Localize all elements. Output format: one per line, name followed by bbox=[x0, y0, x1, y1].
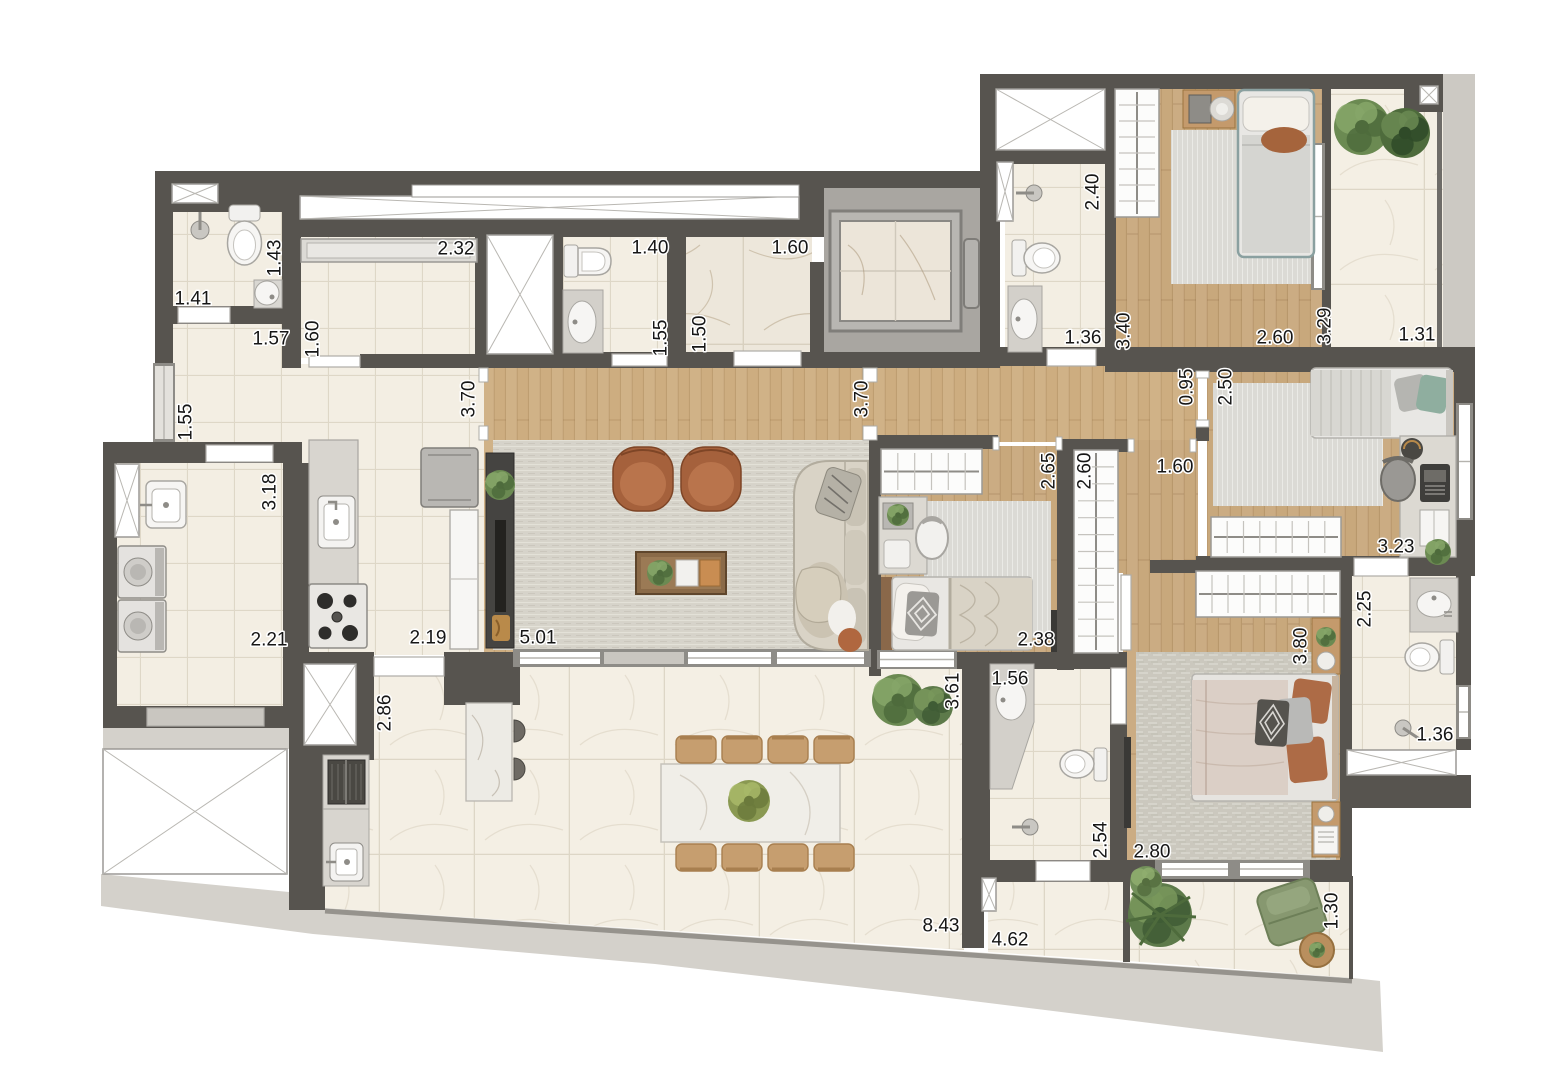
svg-text:5.01: 5.01 bbox=[520, 628, 557, 649]
svg-text:2.54: 2.54 bbox=[1091, 821, 1112, 858]
svg-text:2.80: 2.80 bbox=[1134, 842, 1171, 863]
svg-text:3.70: 3.70 bbox=[852, 381, 873, 418]
svg-text:1.55: 1.55 bbox=[176, 404, 197, 441]
svg-text:2.21: 2.21 bbox=[251, 630, 288, 651]
svg-text:3.29: 3.29 bbox=[1315, 308, 1336, 345]
svg-text:1.43: 1.43 bbox=[265, 240, 286, 277]
svg-text:3.80: 3.80 bbox=[1291, 628, 1312, 665]
svg-text:8.43: 8.43 bbox=[923, 916, 960, 937]
svg-text:4.62: 4.62 bbox=[992, 930, 1029, 951]
svg-text:2.86: 2.86 bbox=[375, 695, 396, 732]
svg-text:2.25: 2.25 bbox=[1355, 591, 1376, 628]
svg-text:1.40: 1.40 bbox=[632, 238, 669, 259]
svg-text:2.40: 2.40 bbox=[1083, 174, 1104, 211]
svg-text:1.30: 1.30 bbox=[1322, 893, 1343, 930]
svg-text:0.95: 0.95 bbox=[1177, 369, 1198, 406]
svg-text:3.40: 3.40 bbox=[1114, 313, 1135, 350]
svg-text:1.36: 1.36 bbox=[1065, 328, 1102, 349]
svg-text:1.41: 1.41 bbox=[175, 289, 212, 310]
svg-text:1.50: 1.50 bbox=[690, 316, 711, 353]
svg-text:1.55: 1.55 bbox=[651, 320, 672, 357]
svg-text:3.70: 3.70 bbox=[459, 381, 480, 418]
svg-text:1.56: 1.56 bbox=[992, 669, 1029, 690]
svg-text:3.18: 3.18 bbox=[260, 474, 281, 511]
svg-text:1.36: 1.36 bbox=[1417, 725, 1454, 746]
svg-text:1.57: 1.57 bbox=[253, 329, 290, 350]
svg-text:1.60: 1.60 bbox=[303, 321, 324, 358]
svg-text:1.60: 1.60 bbox=[772, 238, 809, 259]
svg-text:2.38: 2.38 bbox=[1018, 630, 1055, 651]
svg-text:1.60: 1.60 bbox=[1157, 457, 1194, 478]
svg-text:2.60: 2.60 bbox=[1257, 328, 1294, 349]
svg-text:3.23: 3.23 bbox=[1378, 537, 1415, 558]
svg-text:2.32: 2.32 bbox=[438, 239, 475, 260]
svg-text:2.65: 2.65 bbox=[1039, 453, 1060, 490]
svg-text:2.19: 2.19 bbox=[410, 628, 447, 649]
svg-text:2.60: 2.60 bbox=[1075, 453, 1096, 490]
svg-text:1.31: 1.31 bbox=[1399, 325, 1436, 346]
svg-text:3.61: 3.61 bbox=[943, 673, 964, 710]
svg-text:2.50: 2.50 bbox=[1216, 369, 1237, 406]
